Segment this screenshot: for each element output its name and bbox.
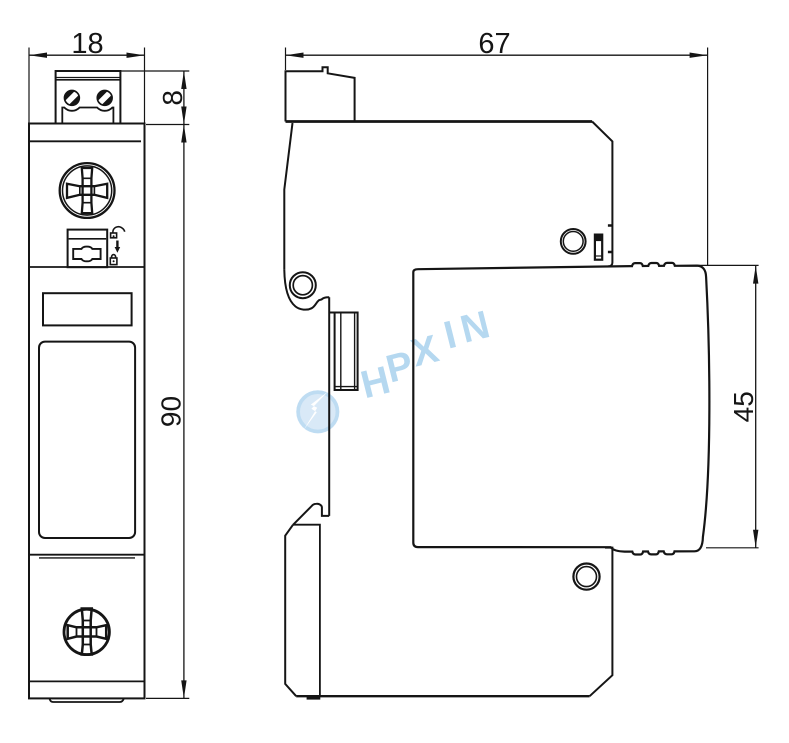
- svg-text:8: 8: [157, 90, 188, 106]
- svg-text:90: 90: [156, 396, 187, 427]
- svg-text:67: 67: [478, 28, 510, 60]
- svg-text:18: 18: [71, 28, 103, 60]
- svg-text:45: 45: [728, 391, 759, 422]
